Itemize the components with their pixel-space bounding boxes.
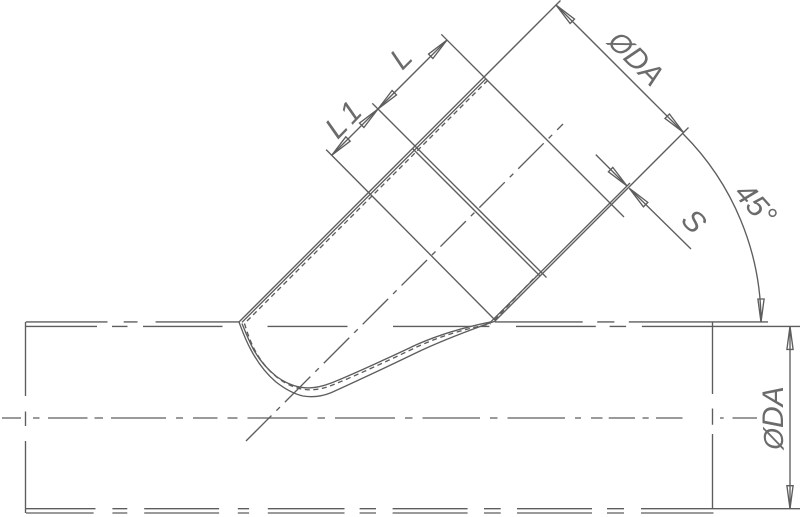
svg-text:L1: L1 <box>319 92 371 145</box>
svg-text:ØDA: ØDA <box>601 24 670 93</box>
svg-text:45°: 45° <box>728 177 783 233</box>
svg-text:S: S <box>675 203 712 240</box>
svg-text:L: L <box>384 41 419 76</box>
svg-text:ØDA: ØDA <box>757 386 790 450</box>
